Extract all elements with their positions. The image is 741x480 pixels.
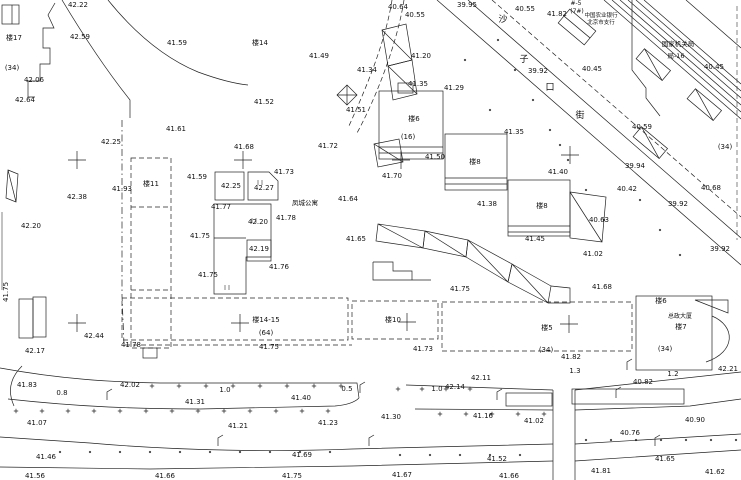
elevation-label: 41.81 bbox=[591, 467, 611, 475]
elevation-label: 41.40 bbox=[548, 168, 568, 176]
elevation-label: 41.02 bbox=[524, 417, 544, 425]
floor-count-label: (16) bbox=[401, 133, 416, 141]
survey-point-dot bbox=[514, 69, 516, 71]
survey-point-dot bbox=[399, 454, 401, 456]
elevation-label: 41.76 bbox=[269, 263, 290, 271]
elevation-label: 41.30 bbox=[381, 413, 401, 421]
elevation-label: 41.75 bbox=[2, 282, 10, 302]
survey-point-dot bbox=[639, 199, 641, 201]
building-number-label: 楼5 bbox=[541, 323, 552, 332]
street-lamp-symbol bbox=[497, 389, 502, 400]
survey-point-dot bbox=[660, 439, 662, 441]
top-left-road bbox=[2, 0, 248, 202]
elevation-label: 41.35 bbox=[504, 128, 524, 136]
elevation-label: 42.38 bbox=[67, 193, 87, 201]
parking-tick bbox=[177, 384, 181, 388]
elevation-label: 42.19 bbox=[249, 245, 269, 253]
parking-tick bbox=[258, 384, 262, 388]
parking-tick bbox=[464, 412, 468, 416]
building-number-label: 楼7 bbox=[675, 322, 686, 331]
elevation-label: 41.23 bbox=[318, 419, 338, 427]
bottom-roads bbox=[0, 366, 741, 480]
survey-grid-cross bbox=[561, 146, 579, 164]
parcel-boundaries bbox=[2, 0, 737, 345]
parking-tick bbox=[222, 409, 226, 413]
survey-point-dot bbox=[464, 59, 466, 61]
south-buildings bbox=[19, 296, 729, 370]
elevation-label: 41.77 bbox=[211, 203, 231, 211]
survey-point-dot bbox=[679, 254, 681, 256]
survey-point-dot bbox=[710, 439, 712, 441]
floor-count-label: (34) bbox=[5, 64, 20, 72]
elevation-label: 41.02 bbox=[583, 250, 603, 258]
survey-drawing: 楼17(34)42.0642.6442.2242.5941.5941.6142.… bbox=[0, 0, 741, 480]
survey-point-dot bbox=[329, 451, 331, 453]
elevation-label: 41.45 bbox=[525, 235, 545, 243]
survey-point-dot bbox=[559, 144, 561, 146]
building-name-label: 国家机关局 bbox=[662, 39, 695, 48]
elevation-label: 41.49 bbox=[309, 52, 329, 60]
floor-count-label: (34) bbox=[539, 346, 554, 354]
building-number-label: 楼11 bbox=[143, 179, 159, 188]
elevation-label: 40.55 bbox=[405, 11, 425, 19]
elevation-label: 41.73 bbox=[413, 345, 433, 353]
elevation-label: 41.68 bbox=[592, 283, 612, 291]
distance-label: 0.8 bbox=[56, 389, 67, 397]
site-plan-map: 楼17(34)42.0642.6442.2242.5941.5941.6142.… bbox=[0, 0, 741, 480]
elevation-label: 41.20 bbox=[411, 52, 431, 60]
parking-tick bbox=[144, 409, 148, 413]
elevation-label: 42.22 bbox=[68, 1, 88, 9]
elevation-label: 40.82 bbox=[633, 378, 653, 386]
survey-point-dot bbox=[429, 454, 431, 456]
building-number-label: 楼8 bbox=[536, 201, 547, 210]
elevation-label: 42.27 bbox=[254, 184, 274, 192]
elevation-label: 41.51 bbox=[346, 106, 366, 114]
survey-grid-cross bbox=[392, 151, 410, 169]
survey-point-dot bbox=[585, 189, 587, 191]
elevation-label: 41.83 bbox=[17, 381, 37, 389]
elevation-label: 40.90 bbox=[685, 416, 705, 424]
building-number-label: 楼8 bbox=[469, 157, 480, 166]
survey-point-dot bbox=[209, 451, 211, 453]
parking-tick bbox=[118, 409, 122, 413]
elevation-label: 41.73 bbox=[274, 168, 294, 176]
building-number-label: 楼10 bbox=[385, 315, 401, 324]
elevation-label: 41.46 bbox=[36, 453, 57, 461]
survey-point-dot bbox=[179, 451, 181, 453]
street-name-char: 街 bbox=[575, 109, 584, 121]
elevation-label: 41.52 bbox=[487, 455, 507, 463]
survey-grid-cross bbox=[68, 314, 86, 332]
elevation-label: 42.21 bbox=[718, 365, 738, 373]
survey-grid-cross bbox=[560, 315, 578, 333]
survey-point-dot bbox=[239, 451, 241, 453]
street-lamp-symbol bbox=[360, 382, 365, 393]
diagonal-street bbox=[437, 0, 741, 265]
distance-label: 1.0 bbox=[431, 385, 442, 393]
elevation-label: 40.55 bbox=[515, 5, 535, 13]
survey-point-dot bbox=[269, 451, 271, 453]
elevation-label: 41.69 bbox=[292, 451, 312, 459]
survey-point-dot bbox=[497, 39, 499, 41]
street-lamp-symbol bbox=[218, 435, 223, 446]
elevation-label: 41.59 bbox=[187, 173, 207, 181]
floor-count-label: (34) bbox=[658, 345, 673, 353]
survey-grid-cross bbox=[231, 314, 249, 332]
elevation-label: 40.68 bbox=[701, 184, 721, 192]
building-number-label: 楼6 bbox=[655, 296, 667, 305]
floor-count-label: (64) bbox=[259, 329, 274, 337]
elevation-label: 40.64 bbox=[388, 3, 409, 11]
elevation-label: 41.21 bbox=[228, 422, 248, 430]
parking-tick bbox=[204, 384, 208, 388]
parking-tick bbox=[326, 409, 330, 413]
elevation-label: 41.35 bbox=[408, 80, 428, 88]
parking-tick bbox=[396, 387, 400, 391]
survey-point-dot bbox=[149, 451, 151, 453]
parking-tick bbox=[150, 384, 154, 388]
elevation-label: 41.16 bbox=[473, 412, 494, 420]
street-lamp-symbol bbox=[627, 359, 632, 370]
tram-route bbox=[337, 0, 417, 167]
survey-point-dot bbox=[659, 229, 661, 231]
survey-point-dot bbox=[610, 439, 612, 441]
parking-tick bbox=[231, 384, 235, 388]
parking-tick bbox=[40, 409, 44, 413]
parking-tick bbox=[542, 412, 546, 416]
elevation-label: 41.72 bbox=[318, 142, 338, 150]
street-name-char: 沙 bbox=[498, 14, 507, 25]
elevation-label: 41.75 bbox=[282, 472, 302, 480]
elevation-label: 41.65 bbox=[655, 455, 675, 463]
street-name-char: 子 bbox=[519, 54, 528, 65]
elevation-label: 41.75 bbox=[450, 285, 470, 293]
elevation-label: 41.40 bbox=[291, 394, 311, 402]
elevation-label: 41.34 bbox=[357, 66, 378, 74]
parking-tick bbox=[14, 409, 18, 413]
survey-point-dot bbox=[119, 451, 121, 453]
survey-point-dot bbox=[567, 159, 569, 161]
elevation-label: 41.68 bbox=[234, 143, 254, 151]
elevation-label: 42.11 bbox=[471, 374, 491, 382]
parking-tick bbox=[196, 409, 200, 413]
elevation-label: 42.20 bbox=[248, 218, 268, 226]
floor-count-label: (7#) bbox=[570, 8, 584, 15]
elevation-label: 41.52 bbox=[254, 98, 274, 106]
elevation-label: 41.78 bbox=[121, 341, 141, 349]
building-number-label: 局-16 bbox=[667, 52, 684, 60]
building-number-label: 楼17 bbox=[6, 33, 22, 42]
elevation-label: 39.92 bbox=[668, 200, 688, 208]
east-building-cluster bbox=[379, 83, 606, 242]
elevation-label: 42.64 bbox=[15, 96, 36, 104]
parking-tick bbox=[66, 409, 70, 413]
elevation-label: 40.45 bbox=[582, 65, 602, 73]
parking-tick bbox=[300, 409, 304, 413]
elevation-label: 41.67 bbox=[392, 471, 412, 479]
survey-point-dot bbox=[459, 454, 461, 456]
elevation-label: 41.75 bbox=[259, 343, 279, 351]
elevation-label: 41.66 bbox=[499, 472, 520, 480]
elevation-label: 40.42 bbox=[617, 185, 637, 193]
elevation-label: 42.02 bbox=[120, 381, 140, 389]
elevation-label: 42.59 bbox=[70, 33, 90, 41]
parking-tick bbox=[312, 384, 316, 388]
parking-tick bbox=[420, 387, 424, 391]
elevation-label: 41.66 bbox=[155, 472, 176, 480]
elevation-label: 41.62 bbox=[705, 468, 725, 476]
floor-count-label: (34) bbox=[718, 143, 733, 151]
elevation-label: 42.17 bbox=[25, 347, 45, 355]
elevation-label: 39.92 bbox=[710, 245, 730, 253]
elevation-label: 41.29 bbox=[444, 84, 464, 92]
elevation-label: 42.14 bbox=[445, 383, 466, 391]
elevation-label: 39.92 bbox=[528, 67, 548, 75]
survey-point-dot bbox=[519, 454, 521, 456]
elevation-label: 41.56 bbox=[25, 472, 46, 480]
parking-tick bbox=[92, 409, 96, 413]
elevation-label: 41.61 bbox=[166, 125, 186, 133]
parking-tick bbox=[438, 412, 442, 416]
elevation-label: 42.44 bbox=[84, 332, 105, 340]
building-name-label: 北京市支行 bbox=[587, 18, 615, 26]
elevation-label: 41.64 bbox=[338, 195, 359, 203]
elevation-label: 40.63 bbox=[589, 216, 609, 224]
elevation-label: 41.38 bbox=[477, 200, 497, 208]
survey-point-dot bbox=[685, 439, 687, 441]
survey-point-dot bbox=[489, 109, 491, 111]
elevation-label: 41.50 bbox=[425, 153, 445, 161]
elevation-label: 42.06 bbox=[24, 76, 45, 84]
elevation-label: 42.20 bbox=[21, 222, 41, 230]
survey-point-dot bbox=[89, 451, 91, 453]
elevation-label: 41.65 bbox=[346, 235, 366, 243]
survey-point-dot bbox=[585, 439, 587, 441]
street-lamp-symbol bbox=[616, 387, 621, 398]
elevation-label: 41.75 bbox=[190, 232, 210, 240]
building-name-label: 总政大厦 bbox=[668, 312, 692, 320]
elevation-label: 41.70 bbox=[382, 172, 402, 180]
street-lamp-symbol bbox=[369, 435, 374, 446]
building-number-label: 楼14-15 bbox=[252, 315, 279, 324]
survey-point-dot bbox=[735, 439, 737, 441]
survey-point-dot bbox=[549, 129, 551, 131]
survey-grid-cross bbox=[68, 151, 86, 169]
parking-tick bbox=[248, 409, 252, 413]
building-name-label: 中国农业银行 bbox=[584, 11, 618, 19]
building-number-label: 楼6 bbox=[408, 114, 420, 123]
street-name-char: 口 bbox=[545, 83, 554, 93]
elevation-label: 40.59 bbox=[632, 123, 652, 131]
elevation-label: 41.31 bbox=[185, 398, 205, 406]
survey-point-dot bbox=[532, 99, 534, 101]
elevation-label: 41.75 bbox=[198, 271, 218, 279]
elevation-label: 42.25 bbox=[101, 138, 121, 146]
elevation-label: 39.94 bbox=[625, 162, 646, 170]
elevation-label: 41.07 bbox=[27, 419, 47, 427]
parking-tick bbox=[285, 384, 289, 388]
parking-tick bbox=[516, 412, 520, 416]
elevation-label: 41.78 bbox=[276, 214, 296, 222]
elevation-label: 39.95 bbox=[457, 1, 477, 9]
street-lamp-symbol bbox=[655, 435, 660, 446]
distance-label: 1.3 bbox=[569, 367, 580, 375]
elevation-label: 41.82 bbox=[547, 10, 567, 18]
building-name-label: 凤城公寓 bbox=[292, 198, 318, 207]
building-number-label: #-5 bbox=[570, 0, 581, 7]
street-lamp-symbol bbox=[107, 389, 112, 400]
distance-label: 1.0 bbox=[219, 386, 230, 394]
parking-tick bbox=[274, 409, 278, 413]
building-number-label: 楼14 bbox=[252, 38, 268, 47]
survey-point-dot bbox=[59, 451, 61, 453]
distance-label: 1.2 bbox=[667, 370, 678, 378]
elevation-label: 41.82 bbox=[561, 353, 581, 361]
parking-tick bbox=[170, 409, 174, 413]
elevation-label: 40.76 bbox=[620, 429, 641, 437]
elevation-label: 40.45 bbox=[704, 63, 724, 71]
elevation-label: 42.25 bbox=[221, 182, 241, 190]
elevation-label: 41.93 bbox=[112, 185, 132, 193]
survey-grid-cross bbox=[234, 151, 252, 169]
elevation-label: 41.59 bbox=[167, 39, 187, 47]
